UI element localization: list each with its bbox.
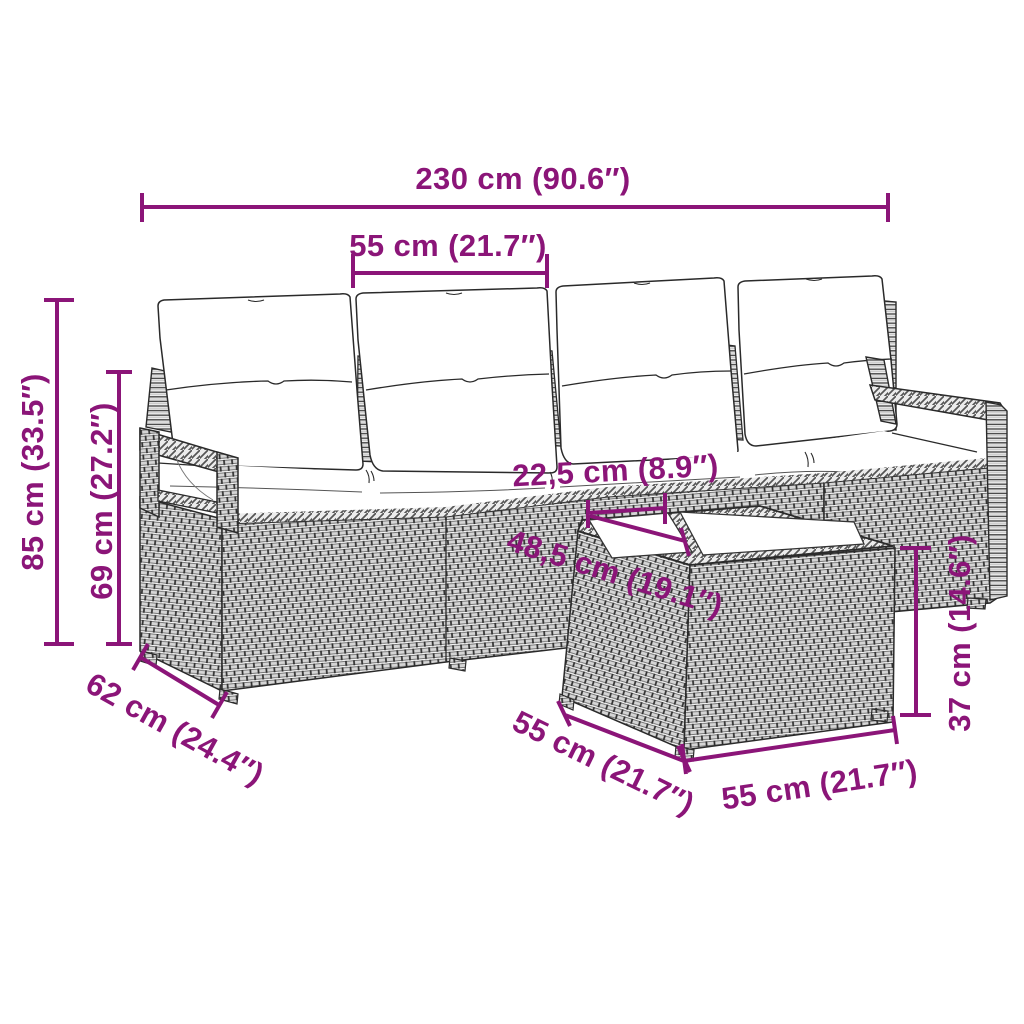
svg-text:37 cm (14.6″): 37 cm (14.6″): [942, 534, 977, 732]
svg-text:69 cm (27.2″): 69 cm (27.2″): [84, 402, 119, 600]
svg-text:85 cm (33.5″): 85 cm (33.5″): [15, 373, 50, 571]
svg-text:55 cm (21.7″): 55 cm (21.7″): [349, 228, 547, 263]
svg-text:230 cm (90.6″): 230 cm (90.6″): [415, 161, 630, 196]
